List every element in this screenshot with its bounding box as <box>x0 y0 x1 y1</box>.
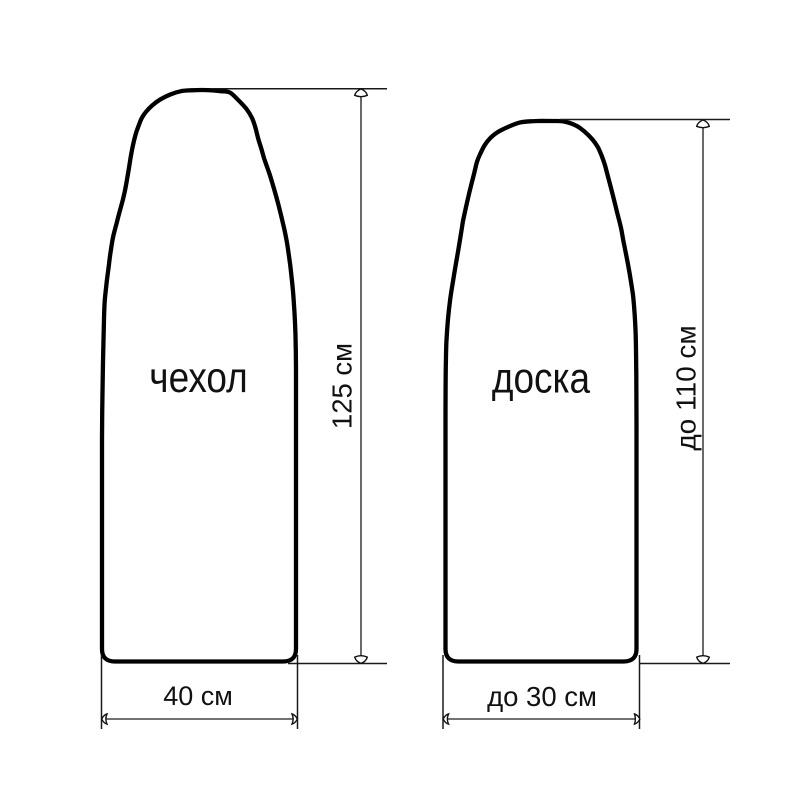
svg-text:чехол: чехол <box>149 355 247 402</box>
svg-text:125 см: 125 см <box>327 343 358 429</box>
svg-text:до 110 см: до 110 см <box>671 325 702 450</box>
svg-text:до 30 см: до 30 см <box>487 681 597 712</box>
svg-text:доска: доска <box>492 355 591 402</box>
svg-text:40 см: 40 см <box>163 681 233 711</box>
